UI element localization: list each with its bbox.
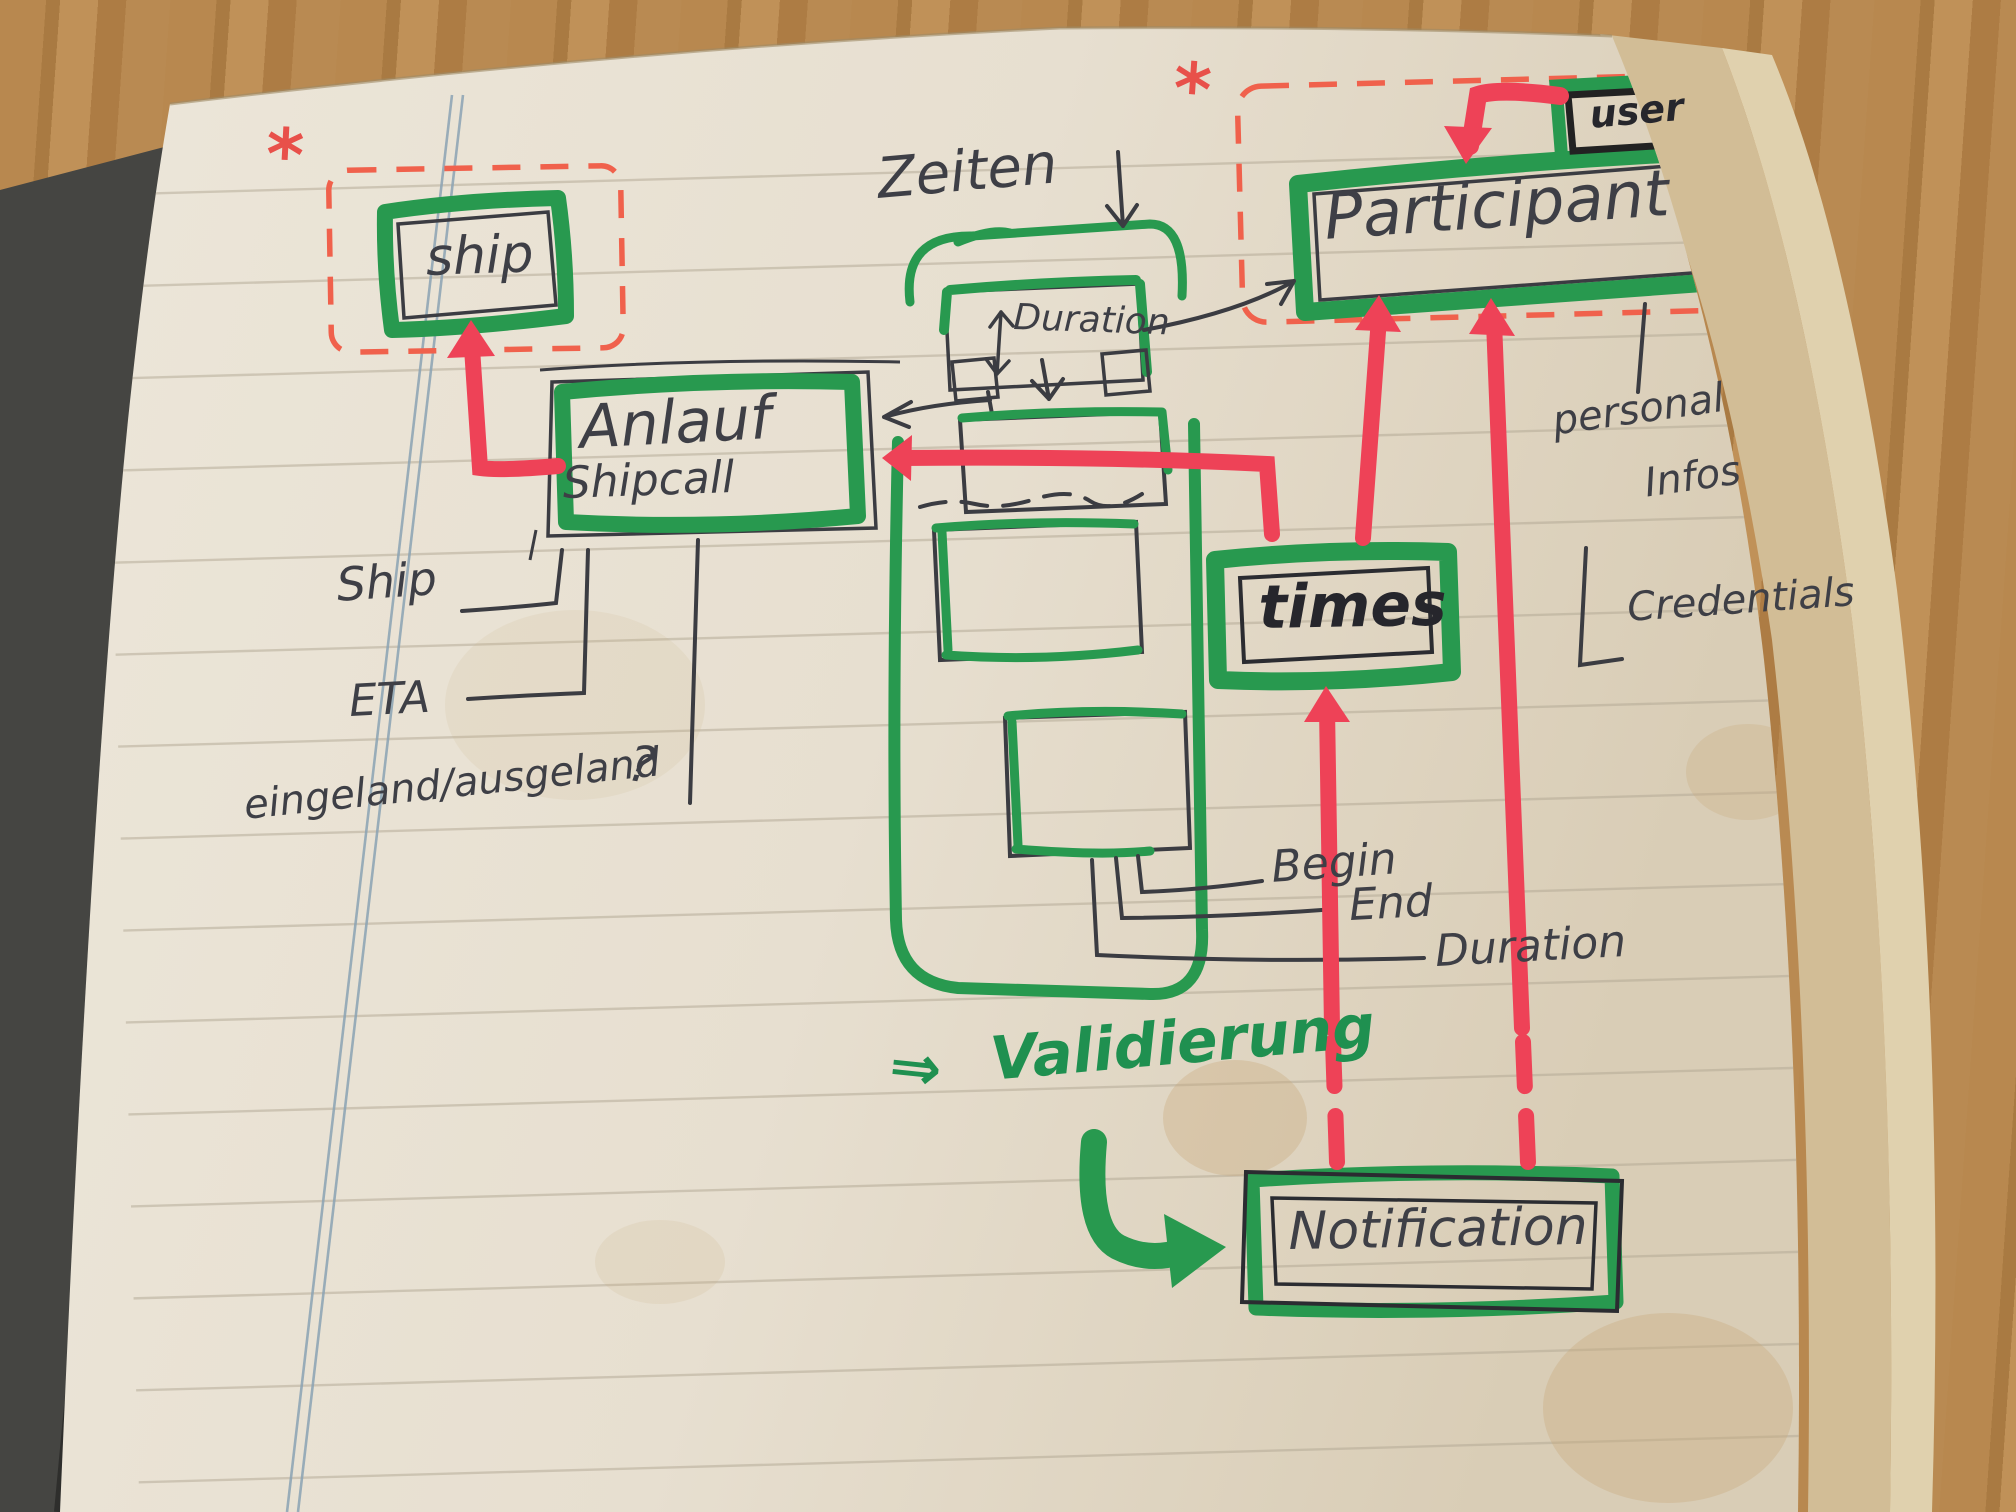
user-node-label: user	[1588, 88, 1685, 134]
ship-node-label: ship	[425, 228, 534, 284]
asterisk-right: *	[1171, 52, 1214, 126]
duration-attr-label: Duration	[1434, 920, 1627, 974]
validation-double-arrow: ⇒	[887, 1034, 945, 1101]
asterisk-left: *	[264, 118, 305, 192]
notification-node-label: Notification	[1288, 1201, 1588, 1258]
times-node-label: times	[1258, 575, 1447, 638]
eta-attr-label: ETA	[348, 676, 431, 724]
end-attr-label: End	[1348, 880, 1434, 928]
notebook-drawing	[0, 0, 2016, 1512]
shipcall-node-title: Anlauf	[578, 388, 773, 458]
ship-attr-label: Ship	[335, 555, 438, 608]
notebook-photo: * ship Anlauf Shipcall Zeiten Duration P…	[0, 0, 2016, 1512]
shipcall-node-subtitle: Shipcall	[562, 456, 735, 506]
zeiten-label: Zeiten	[875, 136, 1059, 207]
duration-node-label: Duration	[1013, 300, 1171, 341]
